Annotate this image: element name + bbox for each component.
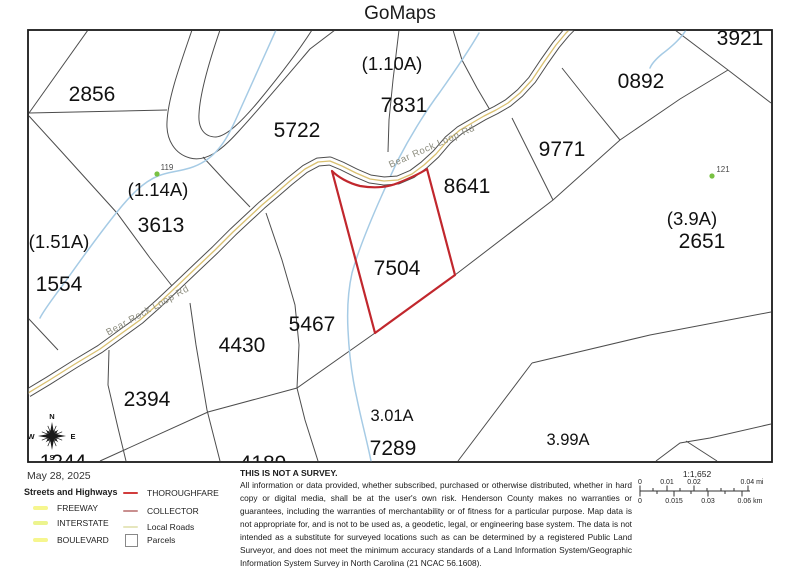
parcel-number-label: 0892 — [618, 70, 665, 93]
legend-item-freeway: FREEWAY — [33, 503, 98, 513]
acreage-label: 3.01A — [370, 407, 413, 425]
legend-label: THOROUGHFARE — [147, 488, 219, 498]
parcel-number-label: 3613 — [138, 214, 185, 237]
acreage-label: (1.10A) — [362, 53, 423, 74]
legend-heading: Streets and Highways — [24, 487, 118, 497]
disclaimer: THIS IS NOT A SURVEY. All information or… — [240, 468, 632, 570]
legend-label: INTERSTATE — [57, 518, 109, 528]
scale-km-label: 0.06 km — [738, 498, 763, 505]
scale-km-label: 0.015 — [665, 498, 683, 505]
scale-bar: 1:1,652 0 0.01 0.02 0.04 mi 0 0.015 0.03… — [638, 469, 764, 505]
legend-label: Parcels — [147, 535, 175, 545]
disclaimer-body: All information or data provided, whethe… — [240, 479, 632, 570]
legend-item-local-roads: Local Roads — [123, 522, 194, 532]
scale-mi-label: 0.02 — [687, 479, 701, 486]
legend-item-collector: COLLECTOR — [123, 506, 199, 516]
boulevard-line-swatch — [33, 538, 48, 542]
parcel-number-label: 5722 — [274, 119, 321, 142]
parcels-square-swatch — [125, 534, 138, 547]
compass-south-label: S — [49, 453, 54, 462]
parcel-number-label: 7289 — [370, 437, 417, 460]
site-number-label: 121 — [716, 165, 730, 174]
site-dot-121 — [709, 173, 714, 178]
interstate-line-swatch — [33, 521, 48, 525]
scale-km-label: 0.03 — [701, 498, 715, 505]
acreage-label: (3.9A) — [667, 208, 717, 229]
parcel-number-label: 2856 — [69, 83, 116, 106]
parcel-number-label: 2651 — [679, 230, 726, 253]
parcel-number-label: 5467 — [289, 313, 336, 336]
legend-label: BOULEVARD — [57, 535, 109, 545]
disclaimer-title: THIS IS NOT A SURVEY. — [240, 468, 632, 478]
road-label-lower: Bear Rock Loop Rd — [104, 283, 191, 338]
legend-item-thoroughfare: THOROUGHFARE — [123, 488, 219, 498]
compass-east-label: E — [70, 432, 75, 441]
collector-line-swatch — [123, 510, 138, 512]
site-number-label: 119 — [161, 163, 174, 172]
acreage-label: 3.99A — [546, 431, 589, 449]
legend-item-interstate: INTERSTATE — [33, 518, 109, 528]
parcel-number-label: 4430 — [219, 334, 266, 357]
scale-mi-label: 0.01 — [660, 479, 674, 486]
scale-mi-ticks — [640, 486, 748, 492]
highlighted-parcel-7504[interactable] — [332, 169, 455, 333]
freeway-line-swatch — [33, 506, 48, 510]
legend-item-parcels: Parcels — [125, 535, 175, 545]
gomaps-print-page: { "title": "GoMaps", "map": { "road_labe… — [0, 0, 800, 564]
thoroughfare-line-swatch — [123, 492, 138, 494]
scale-ratio: 1:1,652 — [683, 469, 712, 479]
map-content: Bear Rock Loop Rd Bear Rock Loop Rd 2856… — [27, 27, 771, 475]
parcel-number-label: 9771 — [539, 138, 586, 161]
map-date: May 28, 2025 — [27, 470, 91, 482]
parcel-number-label: 1554 — [36, 273, 83, 296]
local-roads-line-swatch — [123, 526, 138, 528]
scale-mi-label: 0 — [638, 479, 642, 486]
legend-label: COLLECTOR — [147, 506, 199, 516]
scale-km-label: 0 — [638, 498, 642, 505]
legend-label: FREEWAY — [57, 503, 98, 513]
site-dot-119 — [154, 171, 159, 176]
parcel-number-label: 7831 — [381, 94, 428, 117]
scale-mi-label: 0.04 mi — [741, 479, 764, 486]
parcel-number-label: 7504 — [374, 257, 421, 280]
acreage-label: (1.14A) — [128, 179, 189, 200]
legend-label: Local Roads — [147, 522, 194, 532]
parcel-number-label: 8641 — [444, 175, 491, 198]
legend-item-boulevard: BOULEVARD — [33, 535, 109, 545]
parcel-number-label: 2394 — [124, 388, 171, 411]
compass-north-label: N — [49, 412, 54, 421]
acreage-label: (1.51A) — [29, 231, 90, 252]
